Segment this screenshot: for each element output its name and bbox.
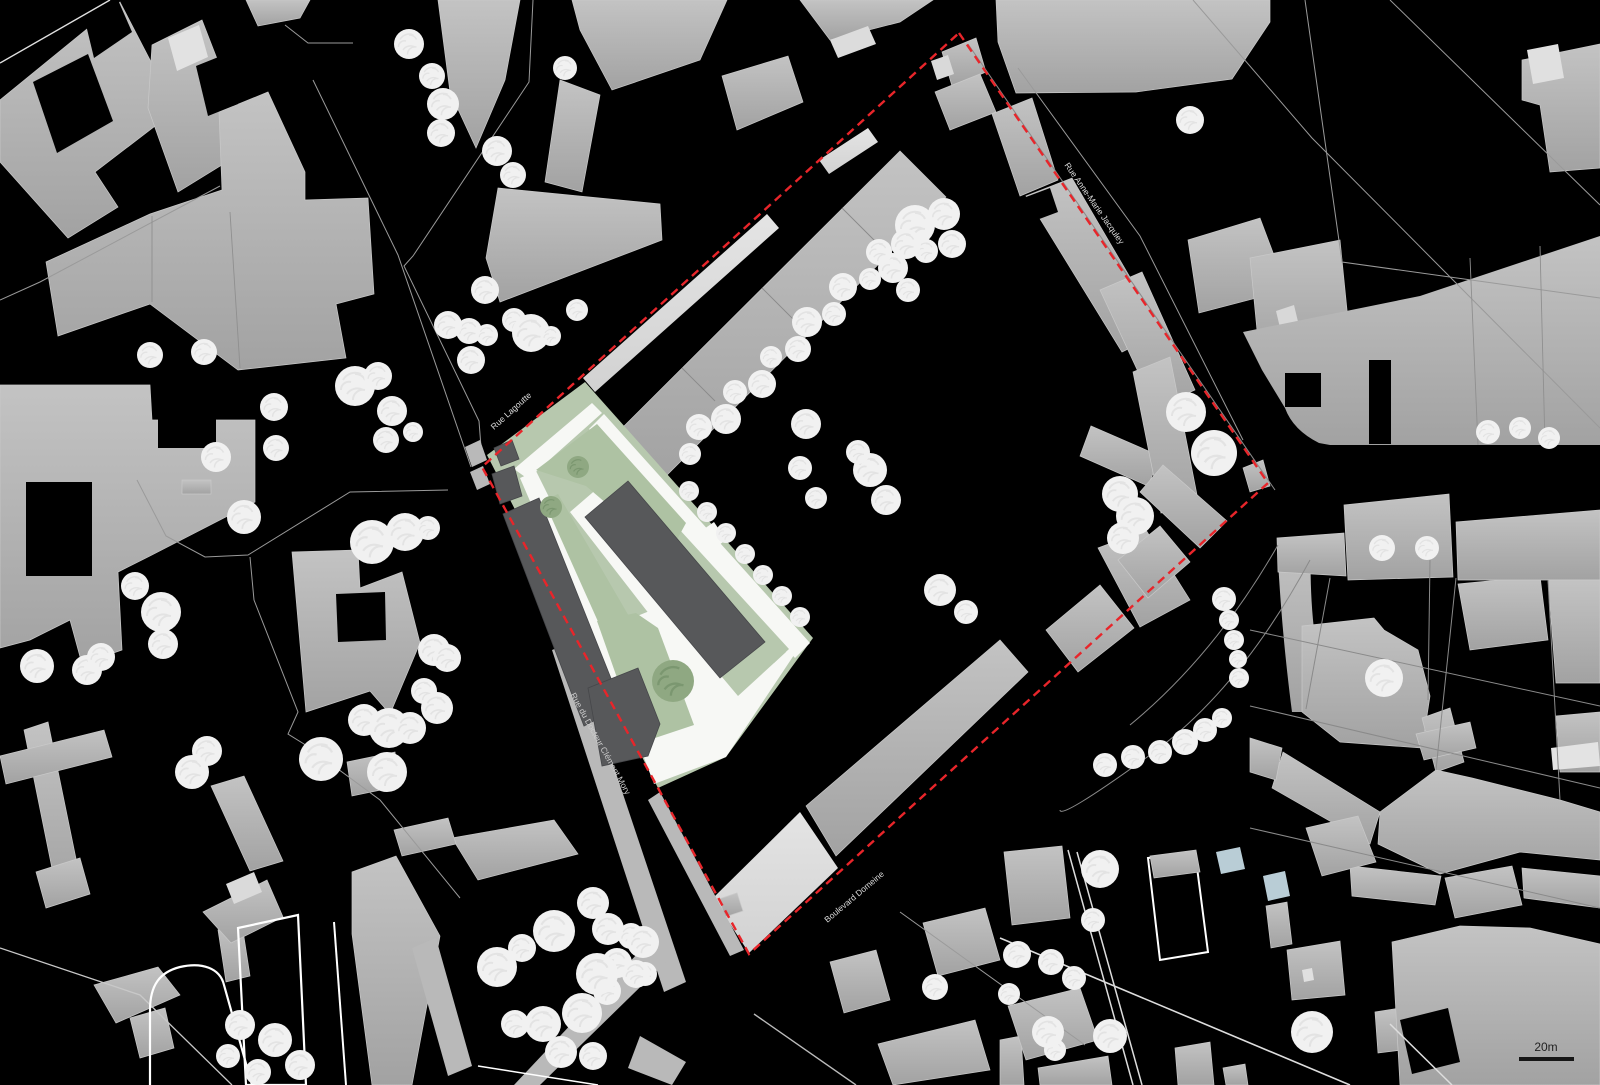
svg-text:20m: 20m [1534,1040,1557,1054]
